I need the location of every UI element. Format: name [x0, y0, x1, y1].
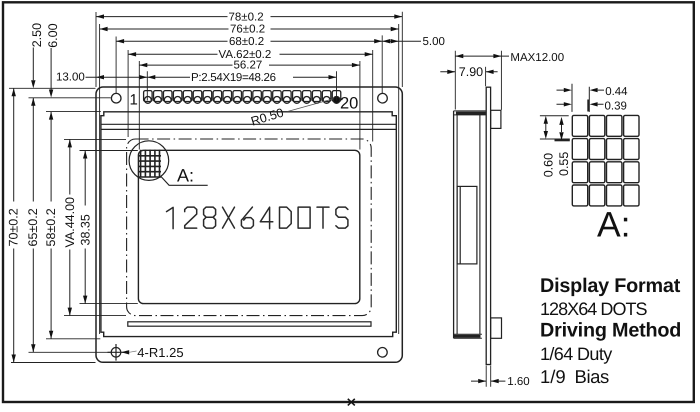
svg-text:5.00: 5.00: [423, 36, 445, 48]
svg-text:0.39: 0.39: [605, 100, 627, 112]
svg-text:4-R1.25: 4-R1.25: [137, 345, 183, 360]
svg-text:76±0.2: 76±0.2: [230, 24, 265, 36]
svg-text:P:2.54X19=48.26: P:2.54X19=48.26: [191, 72, 276, 84]
svg-text:Bias: Bias: [575, 366, 610, 387]
svg-text:13.00: 13.00: [56, 72, 85, 84]
svg-text:1/9: 1/9: [540, 366, 566, 387]
svg-text:20: 20: [340, 95, 358, 113]
svg-text:Driving Method: Driving Method: [540, 319, 681, 341]
svg-text:Display Format: Display Format: [540, 275, 681, 297]
svg-text:7.90: 7.90: [459, 65, 483, 79]
svg-text:A:: A:: [597, 205, 631, 245]
svg-text:38.35: 38.35: [79, 214, 93, 245]
svg-text:68±0.2: 68±0.2: [229, 36, 264, 48]
svg-text:MAX12.00: MAX12.00: [510, 52, 564, 64]
svg-text:1: 1: [130, 92, 138, 109]
svg-text:78±0.2: 78±0.2: [229, 11, 264, 23]
svg-text:1/64 Duty: 1/64 Duty: [540, 344, 612, 364]
svg-text:VA.44.00: VA.44.00: [63, 197, 77, 248]
svg-text:58±0.2: 58±0.2: [44, 208, 58, 246]
svg-text:70±0.2: 70±0.2: [7, 208, 21, 246]
svg-text:128X64 DOTS: 128X64 DOTS: [540, 299, 648, 319]
svg-text:0.60: 0.60: [541, 153, 555, 177]
svg-text:56.27: 56.27: [234, 60, 263, 72]
svg-text:0.44: 0.44: [605, 86, 628, 98]
svg-text:0.55: 0.55: [557, 152, 571, 176]
svg-text:A:: A:: [177, 165, 194, 185]
svg-text:2.50: 2.50: [30, 23, 44, 47]
svg-text:1.60: 1.60: [507, 376, 529, 388]
svg-text:65±0.2: 65±0.2: [26, 208, 40, 246]
svg-text:6.00: 6.00: [46, 23, 60, 47]
